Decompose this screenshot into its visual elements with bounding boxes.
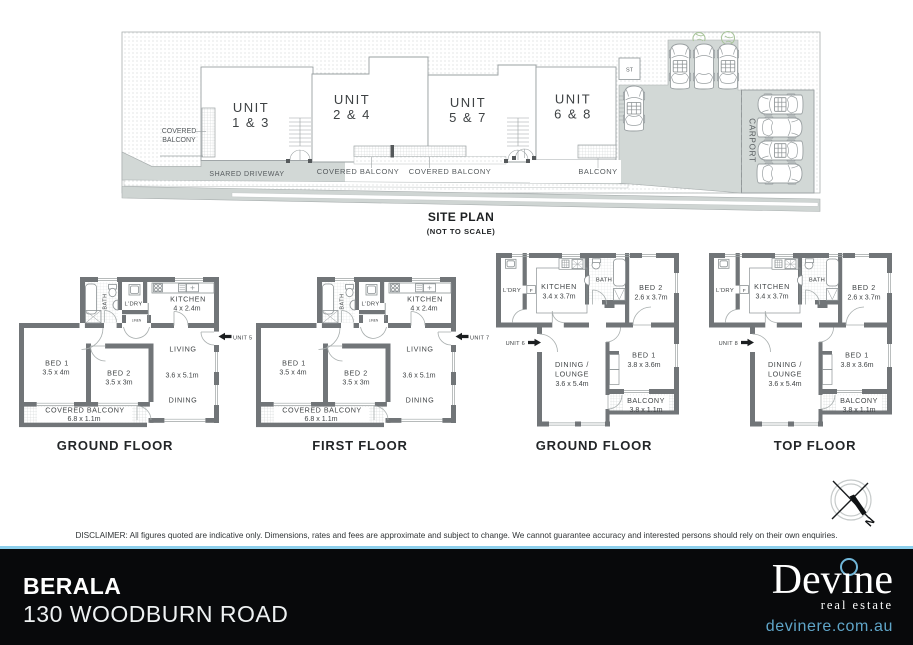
- svg-text:UNIT: UNIT: [450, 95, 486, 110]
- svg-text:N: N: [863, 515, 877, 529]
- svg-text:COVERED: COVERED: [162, 128, 197, 135]
- svg-text:BALCONY: BALCONY: [578, 167, 617, 176]
- svg-text:ST: ST: [626, 68, 634, 74]
- svg-text:1 & 3: 1 & 3: [232, 115, 270, 130]
- svg-text:UNIT 5: UNIT 5: [233, 335, 252, 341]
- svg-text:2 & 4: 2 & 4: [333, 107, 371, 122]
- svg-text:6 & 8: 6 & 8: [554, 107, 592, 122]
- svg-text:UNIT 6: UNIT 6: [506, 341, 525, 347]
- svg-text:UNIT: UNIT: [334, 92, 370, 107]
- svg-text:5 & 7: 5 & 7: [449, 110, 487, 125]
- svg-text:COVERED BALCONY: COVERED BALCONY: [317, 167, 400, 176]
- svg-text:UNIT: UNIT: [555, 92, 591, 107]
- svg-text:CARPORT: CARPORT: [748, 118, 757, 163]
- svg-text:UNIT 8: UNIT 8: [719, 341, 738, 347]
- svg-text:SHARED DRIVEWAY: SHARED DRIVEWAY: [209, 171, 284, 178]
- svg-text:COVERED BALCONY: COVERED BALCONY: [409, 167, 492, 176]
- svg-text:BALCONY: BALCONY: [162, 137, 196, 144]
- svg-text:UNIT 7: UNIT 7: [470, 335, 489, 341]
- svg-text:UNIT: UNIT: [233, 100, 269, 115]
